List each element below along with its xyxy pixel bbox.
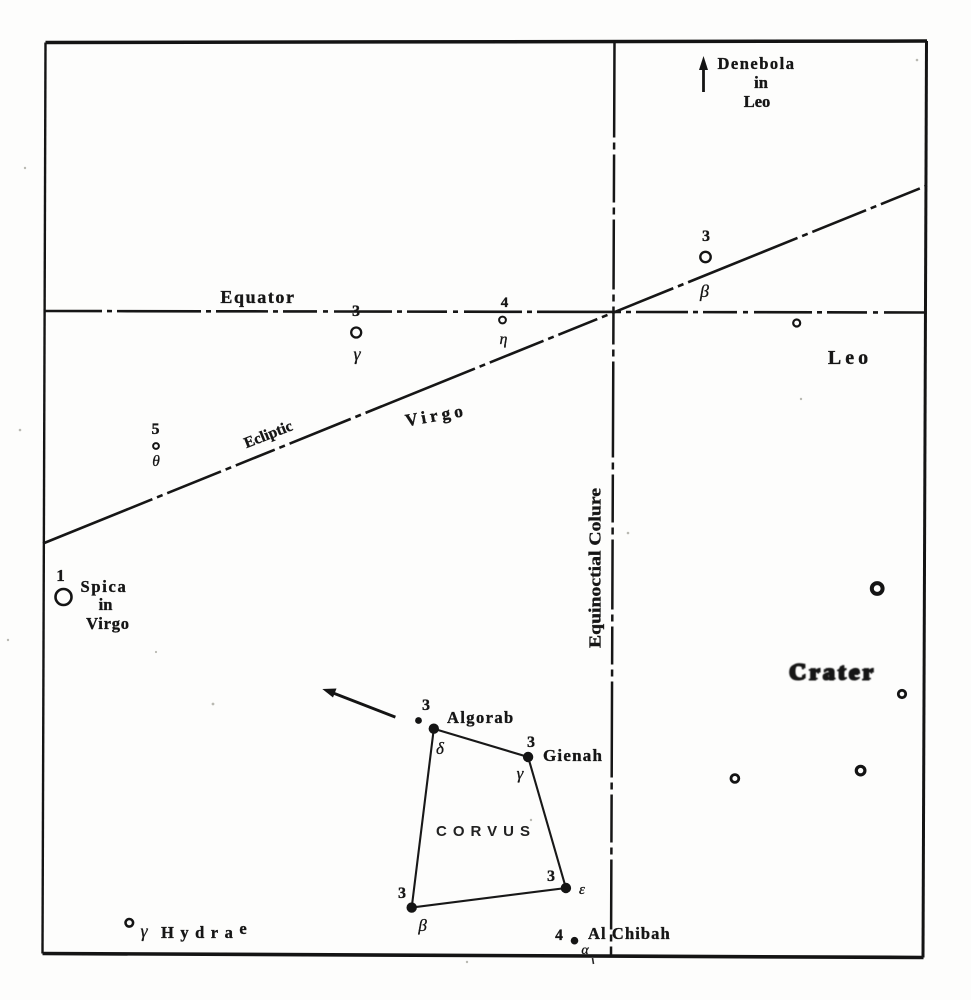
svg-text:Leo: Leo [744,92,771,111]
svg-text:γ: γ [140,921,148,941]
svg-text:in: in [754,73,768,92]
svg-text:3: 3 [398,885,406,902]
svg-text:θ: θ [152,453,160,470]
svg-text:Spica: Spica [80,577,127,596]
svg-text:α: α [581,943,589,958]
svg-text:1: 1 [56,566,65,585]
svg-text:ε: ε [579,882,585,898]
svg-text:3: 3 [422,697,430,714]
svg-text:in: in [99,595,113,614]
svg-text:Denebola: Denebola [718,54,796,73]
svg-text:Crater: Crater [790,659,877,685]
svg-text:Virgo: Virgo [86,614,130,633]
svg-text:Equinoctial Colure: Equinoctial Colure [586,488,605,648]
svg-text:3: 3 [527,734,535,751]
svg-text:3: 3 [352,303,360,320]
svg-text:4: 4 [501,295,509,311]
svg-text:Algorab: Algorab [447,708,515,727]
svg-text:Al Chibah: Al Chibah [588,924,671,943]
svg-text:CORVUS: CORVUS [436,823,536,840]
svg-text:γ: γ [353,344,361,364]
svg-text:Equator: Equator [220,287,295,307]
svg-text:3: 3 [702,228,710,245]
svg-text:3: 3 [547,868,555,885]
svg-text:Gienah: Gienah [543,746,603,765]
svg-text:5: 5 [152,421,160,438]
svg-text:δ: δ [436,739,445,758]
svg-text:β: β [699,281,709,301]
svg-text:η: η [500,331,508,348]
svg-text:4: 4 [555,927,563,944]
svg-text:β: β [417,916,427,935]
svg-text:Leo: Leo [828,347,872,369]
